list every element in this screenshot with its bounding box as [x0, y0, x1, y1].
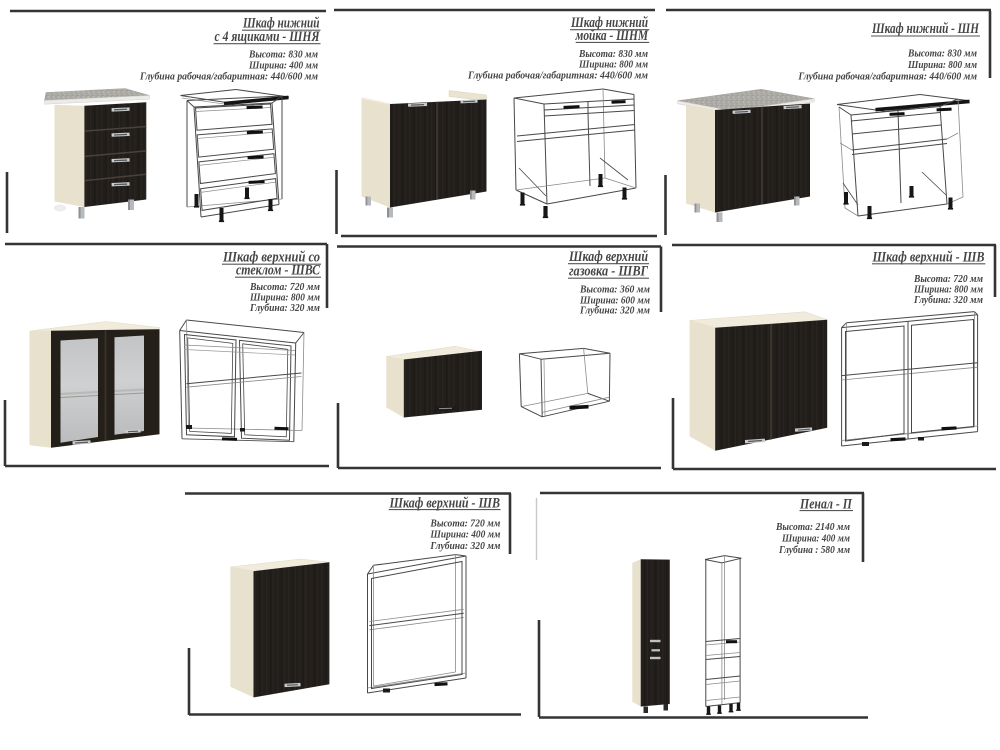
svg-text:Шкаф нижний - ШН: Шкаф нижний - ШН	[871, 21, 980, 37]
svg-text:Высота: 720 мм: Высота: 720 мм	[429, 519, 500, 530]
svg-text:Глубина: 320 мм: Глубина: 320 мм	[249, 303, 320, 314]
svg-text:Высота: 360 мм: Высота: 360 мм	[579, 285, 650, 296]
svg-text:мойка - ШНМ: мойка - ШНМ	[575, 28, 649, 44]
svg-text:Ширина: 400 мм: Ширина: 400 мм	[430, 530, 501, 541]
svg-text:Высота: 720 мм: Высота: 720 мм	[249, 282, 320, 293]
svg-text:Глубина рабочая/габаритная: 44: Глубина рабочая/габаритная: 440/600 мм	[798, 71, 978, 83]
svg-text:газовка - ШВГ: газовка - ШВГ	[569, 264, 649, 280]
svg-text:Ширина: 400 мм: Ширина: 400 мм	[781, 533, 850, 545]
svg-text:Глубина: 320 мм: Глубина: 320 мм	[429, 541, 500, 552]
svg-text:Глубина рабочая/габаритная: 44: Глубина рабочая/габаритная: 440/600 мм	[139, 71, 318, 83]
svg-text:Высота: 720 мм: Высота: 720 мм	[913, 274, 983, 285]
svg-text:Глубина: 320 мм: Глубина: 320 мм	[579, 306, 650, 317]
svg-text:Высота: 830 мм: Высота: 830 мм	[907, 48, 977, 60]
svg-text:Высота: 2140 мм: Высота: 2140 мм	[775, 521, 850, 533]
svg-text:Ширина: 800 мм: Ширина: 800 мм	[249, 293, 320, 304]
svg-text:Глубина: 320 мм: Глубина: 320 мм	[913, 295, 983, 306]
svg-text:Шкаф верхний - ШВ: Шкаф верхний - ШВ	[872, 250, 985, 266]
svg-text:Глубина : 580 мм: Глубина : 580 мм	[778, 544, 850, 556]
svg-text:Глубина рабочая/габаритная: 44: Глубина рабочая/габаритная: 440/600 мм	[467, 70, 648, 82]
svg-text:Ширина: 800 мм: Ширина: 800 мм	[907, 59, 977, 71]
svg-text:с 4 ящиками - ШНЯ: с 4 ящиками - ШНЯ	[215, 29, 321, 45]
svg-text:Ширина: 800 мм: Ширина: 800 мм	[913, 285, 983, 296]
svg-text:стеклом - ШВС: стеклом - ШВС	[236, 263, 321, 279]
